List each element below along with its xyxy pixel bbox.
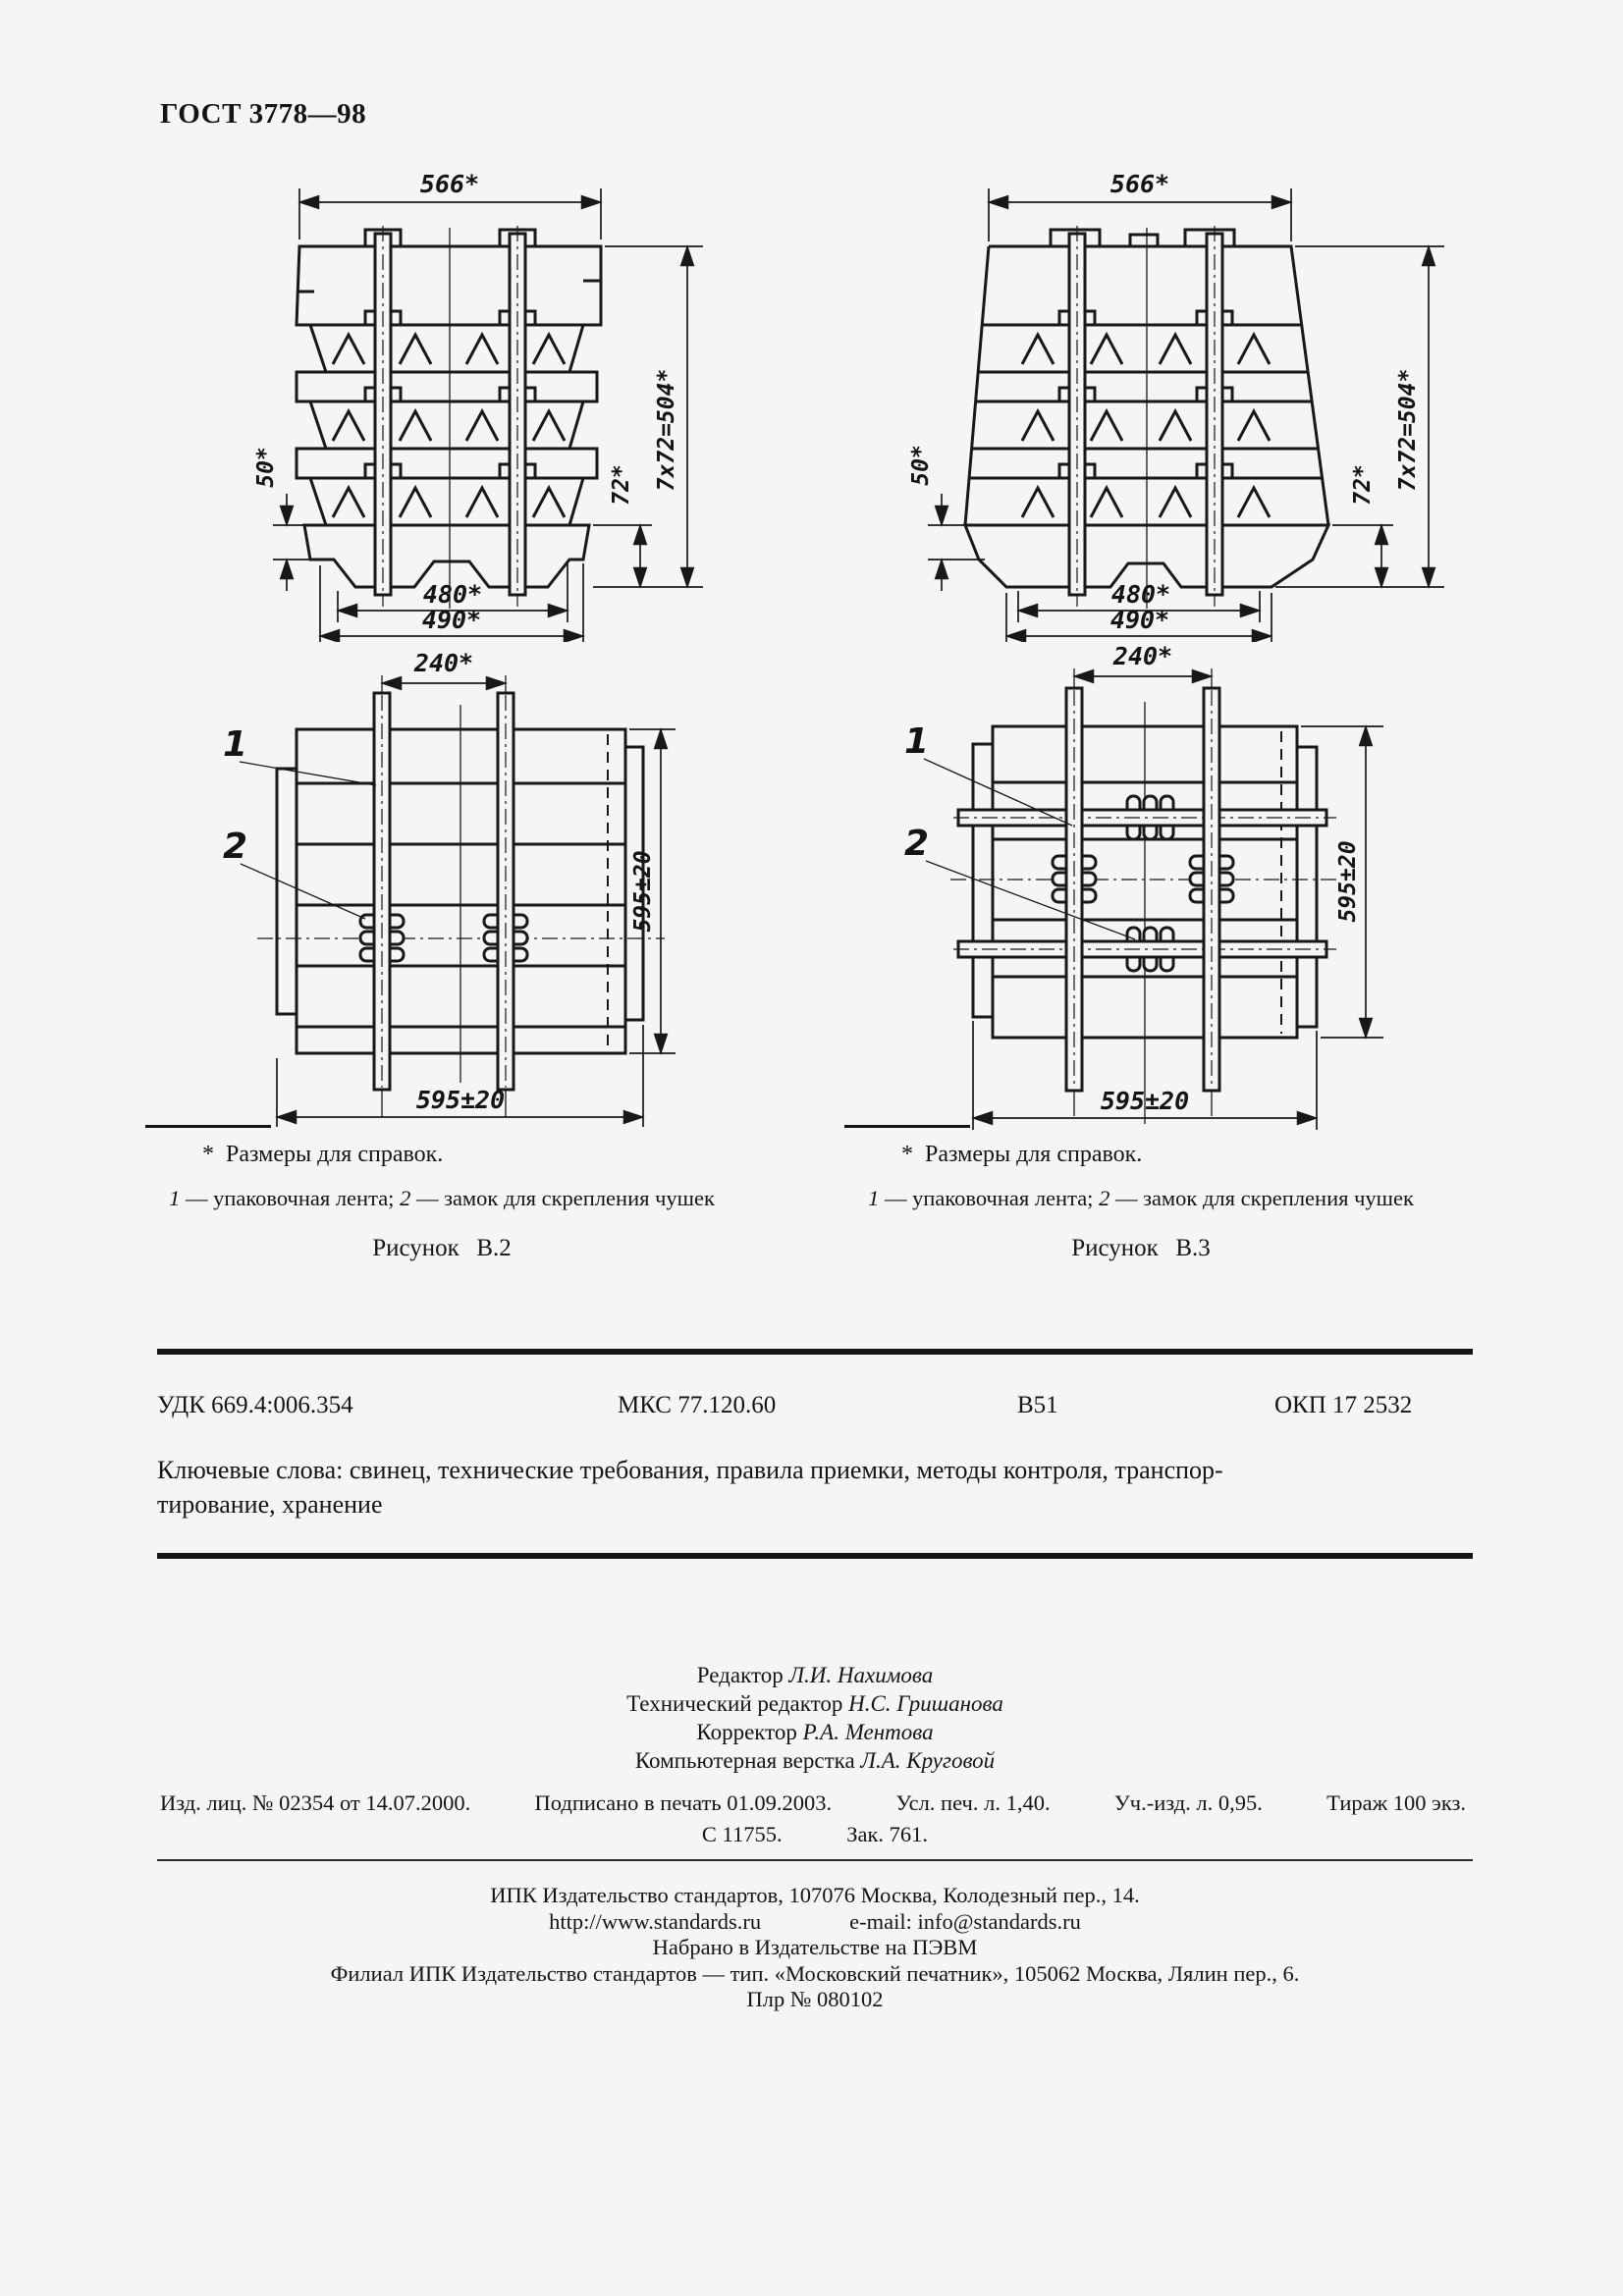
figure-b2-side-view: 566* 7x72=504* 72* 50* 480* 490* [128,143,717,642]
publisher-typeset: Набрано в Издательстве на ПЭВМ [157,1935,1473,1961]
figure-b3-caption-block: * Размеры для справок. 1 — упаковочная л… [815,1125,1467,1262]
publisher-url: http://www.standards.ru [549,1909,761,1934]
footnote-star: * [901,1142,913,1167]
dim-plan-depth: 595±20 [1335,840,1361,922]
legend-num-2: 2 [1099,1186,1109,1210]
divider-rule-bottom [157,1553,1473,1559]
mks-code: МКС 77.120.60 [618,1392,776,1419]
dim-offset: 50* [908,445,934,486]
editor-line: Компьютерная верстка Л.А. Круговой [157,1746,1473,1775]
strap-centerlines [1077,226,1215,607]
dim-strap-gap: 240* [413,649,473,677]
udk-code: УДК 669.4:006.354 [157,1392,353,1419]
editor-role: Компьютерная верстка [635,1748,855,1773]
classification-row: УДК 669.4:006.354 МКС 77.120.60 В51 ОКП … [157,1392,1473,1425]
keywords-line-1: Ключевые слова: свинец, технические треб… [157,1453,1483,1487]
keywords-line-2: тирование, хранение [157,1487,1483,1522]
callouts: 1 2 [904,721,1135,939]
imprint-divider [157,1859,1473,1861]
page-title: ГОСТ 3778—98 [160,98,366,131]
footnote-text: Размеры для справок. [226,1142,443,1167]
publisher-branch: Филиал ИПК Издательство стандартов — тип… [157,1961,1473,1988]
legend-text-1: — упаковочная лента; [180,1186,400,1210]
editor-name: Р.А. Ментова [803,1720,934,1744]
dim-stack-height: 7x72=504* [1395,369,1421,492]
dim-plan-width: 595±20 [416,1086,505,1114]
figure-b3-side-view: 566* 7x72=504* 72* 50* 480* 490* [869,143,1458,642]
dimensions: 240* 595±20 595±20 [973,642,1383,1130]
figure-b3-plan-view: 1 2 240* 595±20 595±20 [838,633,1427,1158]
legend-text-2: — замок для скрепления чушек [1109,1186,1414,1210]
legend-text-2: — замок для скрепления чушек [410,1186,715,1210]
callout-lock: 2 [904,824,929,864]
group-code: В51 [1017,1392,1058,1419]
dim-offset: 50* [253,447,279,488]
packing-straps [374,693,514,1090]
editors-block: Редактор Л.И. Нахимова Технический редак… [157,1661,1473,1775]
okp-code: ОКП 17 2532 [1274,1392,1412,1419]
dim-inner-width: 480* [1111,580,1170,609]
footnote: * Размеры для справок. [815,1142,1467,1168]
divider-rule-top [157,1349,1473,1355]
imprint-license: Изд. лиц. № 02354 от 14.07.2000. [160,1790,470,1816]
callouts: 1 2 [223,724,376,919]
document-page: ГОСТ 3778—98 [0,0,1623,2296]
dim-inner-width: 480* [423,580,482,609]
editor-line: Редактор Л.И. Нахимова [157,1661,1473,1689]
legend-num-2: 2 [400,1186,410,1210]
keywords: Ключевые слова: свинец, технические треб… [157,1453,1483,1522]
dim-row-height: 72* [1350,464,1376,506]
strap-centerlines [382,695,506,1088]
dim-stack-height: 7x72=504* [654,369,679,492]
imprint-line-2: С 11755. Зак. 761. [157,1822,1473,1847]
imprint-pub-sheets: Уч.-изд. л. 0,95. [1114,1790,1263,1816]
dim-row-height: 72* [609,464,634,506]
footnote: * Размеры для справок. [116,1142,768,1168]
callout-band: 1 [904,721,929,762]
imprint-signed: Подписано в печать 01.09.2003. [535,1790,833,1816]
publisher-address: ИПК Издательство стандартов, 107076 Моск… [157,1883,1473,1909]
editor-line: Технический редактор Н.С. Гришанова [157,1689,1473,1718]
editor-line: Корректор Р.А. Ментова [157,1718,1473,1746]
dimensions: 240* 595±20 595±20 [277,649,676,1127]
figure-b2-caption-block: * Размеры для справок. 1 — упаковочная л… [116,1125,768,1262]
dim-outer-width: 490* [1110,606,1169,634]
dim-top-width: 566* [420,170,479,198]
editor-role: Редактор [697,1663,784,1687]
imprint-c-number: С 11755. [702,1822,783,1846]
legend-text-1: — упаковочная лента; [879,1186,1099,1210]
dim-plan-width: 595±20 [1101,1087,1189,1115]
dim-plan-depth: 595±20 [630,850,656,932]
publisher-block: ИПК Издательство стандартов, 107076 Моск… [157,1883,1473,2013]
editor-name: Н.С. Гришанова [848,1691,1003,1716]
legend-num-1: 1 [868,1186,879,1210]
editor-role: Корректор [696,1720,797,1744]
editor-name: Л.И. Нахимова [788,1663,933,1687]
imprint-press-sheets: Усл. печ. л. 1,40. [895,1790,1050,1816]
editor-role: Технический редактор [626,1691,842,1716]
imprint-line-1: Изд. лиц. № 02354 от 14.07.2000. Подписа… [160,1790,1466,1816]
packing-straps [1069,234,1222,595]
publisher-contacts: http://www.standards.rue-mail: info@stan… [157,1909,1473,1936]
footnote-rule [844,1125,970,1128]
figure-legend: 1 — упаковочная лента; 2 — замок для скр… [116,1186,768,1211]
publisher-plr: Плр № 080102 [157,1987,1473,2013]
footnote-text: Размеры для справок. [925,1142,1142,1167]
strap-centerlines [1074,690,1212,1087]
callout-band: 1 [223,724,247,765]
ingot-stack [297,230,601,587]
figure-legend: 1 — упаковочная лента; 2 — замок для скр… [815,1186,1467,1211]
callout-lock: 2 [223,827,247,867]
legend-num-1: 1 [169,1186,180,1210]
dim-outer-width: 490* [422,606,481,634]
footnote-rule [145,1125,271,1128]
editor-name: Л.А. Круговой [860,1748,995,1773]
publisher-email: e-mail: info@standards.ru [849,1909,1081,1934]
figure-caption: Рисунок В.3 [815,1235,1467,1262]
figure-b2-plan-view: 1 2 240* 595±20 595±20 [130,636,679,1161]
imprint-copies: Тираж 100 экз. [1326,1790,1466,1816]
strap-axes [382,675,506,1117]
footnote-star: * [202,1142,214,1167]
dim-top-width: 566* [1110,170,1169,198]
figure-caption: Рисунок В.2 [116,1235,768,1262]
dim-strap-gap: 240* [1112,642,1172,670]
imprint-order: Зак. 761. [846,1822,928,1846]
